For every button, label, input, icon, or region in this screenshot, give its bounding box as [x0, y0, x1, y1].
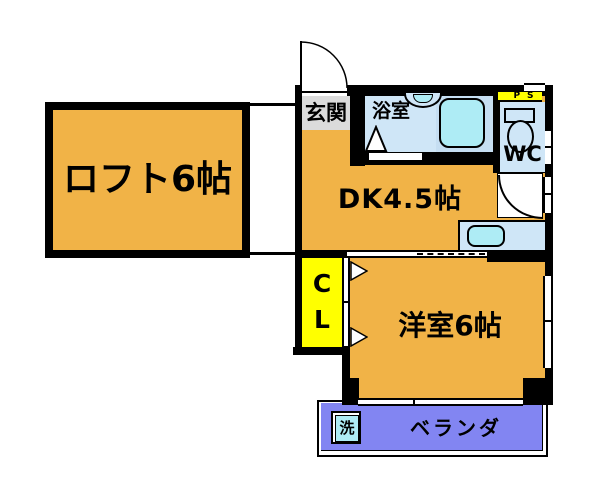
wall-dk-west-right — [487, 250, 545, 262]
bathtub-icon — [439, 98, 485, 148]
closet-label-line2: L — [302, 302, 342, 338]
wc-door-arc-icon — [498, 174, 544, 219]
veranda-label: ベランダ — [396, 415, 516, 441]
sliding-door-dashes — [417, 253, 485, 255]
loft-room: ロフト6帖 — [45, 102, 250, 258]
bath-door-strip — [368, 152, 423, 161]
loft-label: ロフト6帖 — [53, 110, 242, 250]
wall-west-left-foot — [342, 378, 359, 405]
entrance-threshold — [302, 91, 347, 93]
closet-door-divider — [344, 301, 348, 303]
washbasin-bowl — [413, 94, 433, 103]
closet-door-triangle-bottom-icon — [350, 327, 368, 347]
window-tick — [545, 320, 551, 322]
bathroom-label: 浴室 — [367, 99, 415, 123]
wall-closet-bottom — [293, 347, 350, 355]
washing-machine-icon: 洗 — [331, 411, 361, 444]
wc-door — [497, 173, 543, 218]
window-tick — [413, 400, 415, 404]
closet-door-strip — [342, 258, 350, 346]
dk-label: DK4.5帖 — [325, 183, 475, 215]
loft-connector-bottom — [248, 252, 296, 255]
entrance-door-arc-icon — [300, 41, 349, 90]
closet-door-triangle-top-icon — [350, 261, 368, 281]
window-tick — [545, 146, 551, 148]
entry-label: 玄関 — [302, 96, 350, 130]
closet-label: C L — [302, 258, 342, 338]
western-room-label: 洋室6帖 — [380, 308, 520, 344]
washing-machine-label: 洗 — [335, 415, 359, 442]
wall-corner-block — [523, 378, 553, 405]
wc-label: WC — [500, 141, 545, 167]
dk-west-sliding-door — [347, 250, 487, 258]
window-tick — [545, 193, 551, 195]
entry-area: 玄関 — [302, 96, 350, 130]
kitchen-sink-icon — [467, 225, 505, 247]
veranda-window — [358, 398, 523, 406]
floor-plan: ロフト6帖 玄関 PS — [0, 0, 600, 493]
right-window-3 — [543, 276, 553, 368]
closet-label-line1: C — [302, 266, 342, 302]
loft-connector-top — [248, 103, 296, 106]
pipe-space: PS — [498, 92, 542, 102]
bath-door-triangle-icon — [364, 125, 388, 153]
closet-area: C L — [302, 258, 342, 347]
right-window-2 — [543, 177, 553, 213]
wall-left — [295, 85, 302, 355]
pipe-space-label: PS — [498, 92, 549, 100]
